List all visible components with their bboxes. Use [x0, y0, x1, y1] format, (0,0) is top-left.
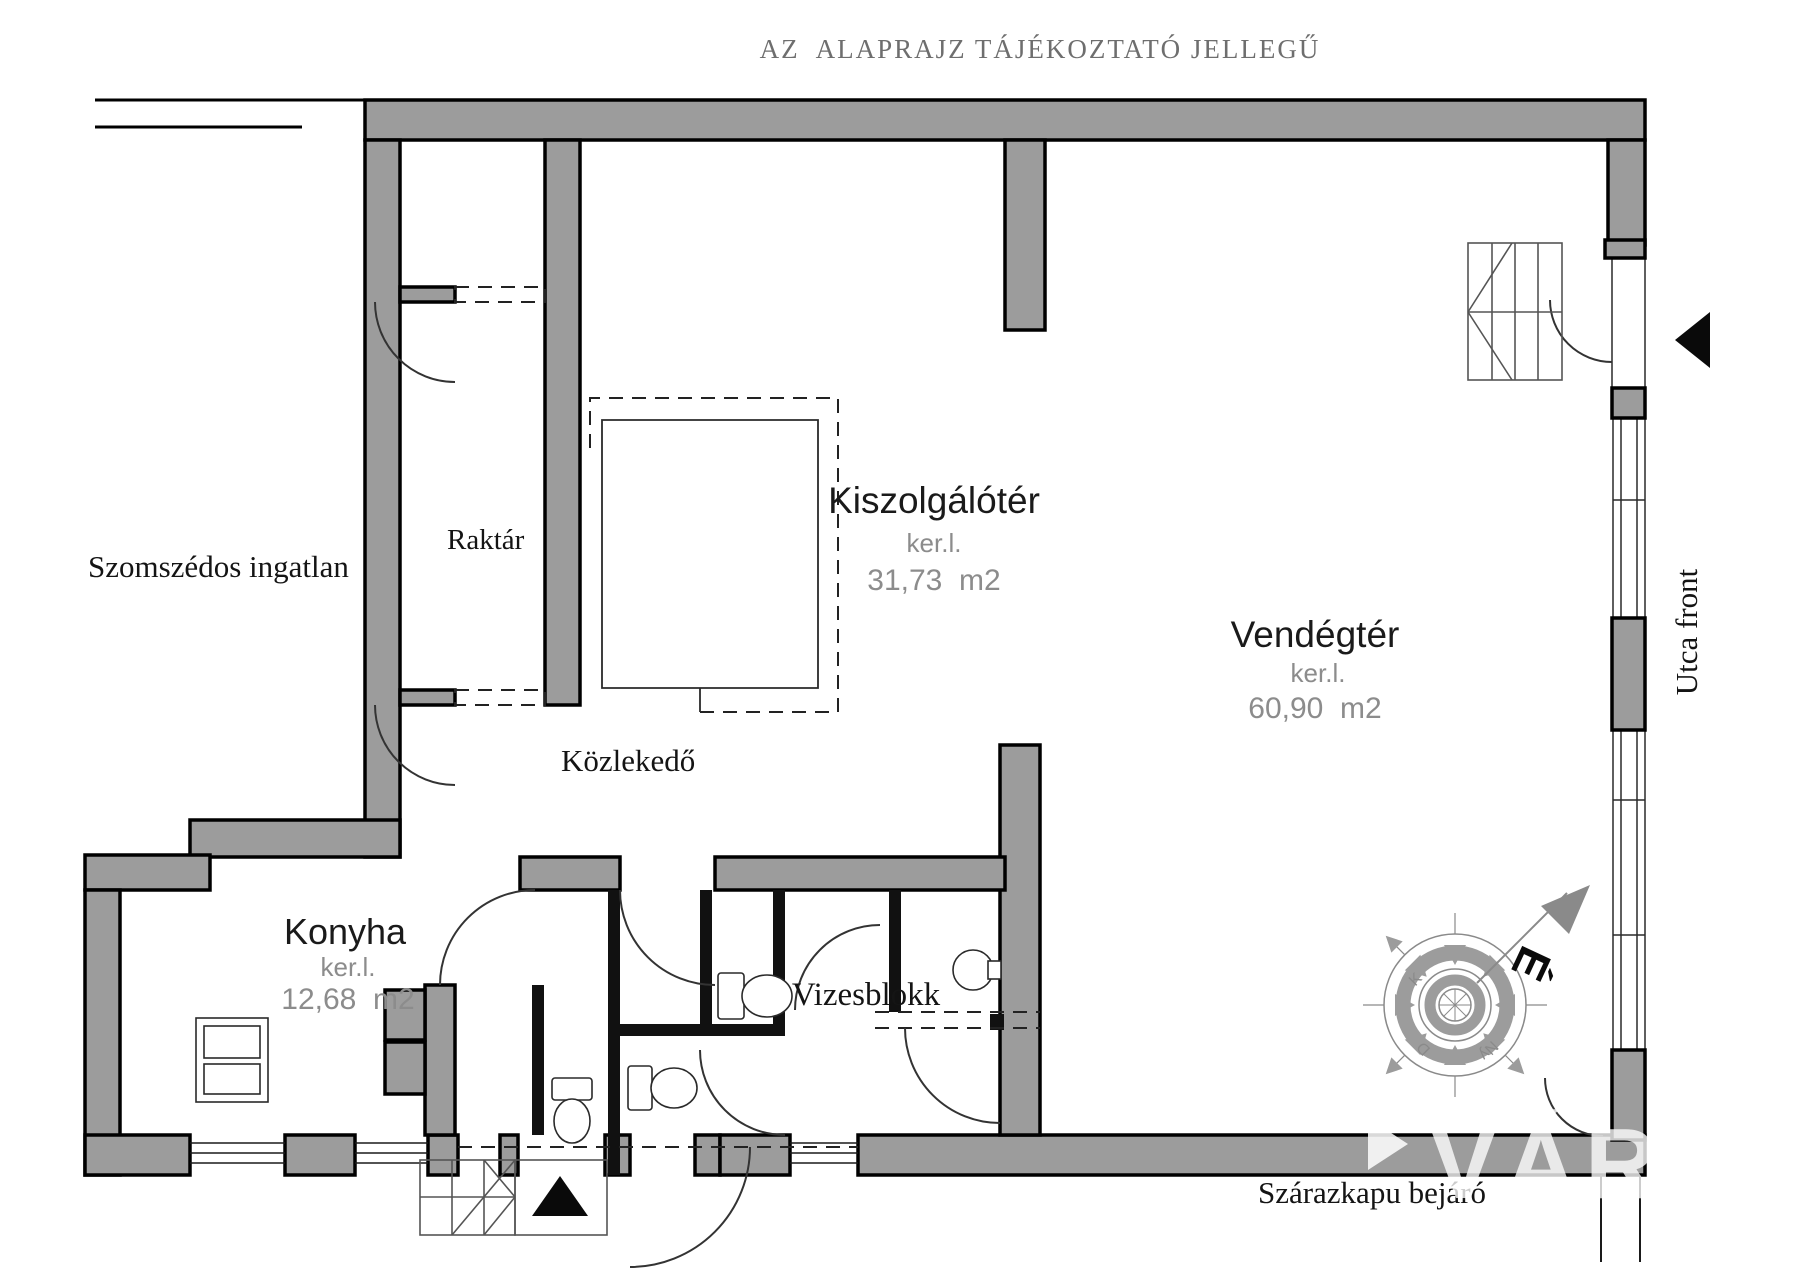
- wall-konyha-left: [85, 890, 120, 1175]
- watermark-text: VÁRO: [1430, 1108, 1751, 1220]
- wall-raktar-right: [545, 140, 580, 705]
- konyha-area: 12,68 m2: [281, 983, 414, 1016]
- wall-left: [365, 140, 400, 857]
- wall-right-pier-b: [1612, 618, 1645, 730]
- wall-bottom-a: [85, 1135, 190, 1175]
- room-label-vendegter: Vendégtér: [1231, 614, 1400, 655]
- wall-right-lintel: [1605, 240, 1645, 258]
- staircase-top-right: [1468, 243, 1562, 380]
- wall-sanitary-top-b: [715, 857, 1005, 890]
- washbasin: [953, 950, 1001, 990]
- entry-arrow-right: [1675, 312, 1710, 368]
- floor-plan-page: K D Ny É AZ ALAPRAJZ TÁJÉKOZTATÓ JELLEGŰ…: [0, 0, 1812, 1280]
- compass-rose: K D Ny É: [1363, 885, 1590, 1097]
- floor-plan-canvas: K D Ny É AZ ALAPRAJZ TÁJÉKOZTATÓ JELLEGŰ…: [0, 0, 1812, 1280]
- room-label-vizesblokk: Vizesblokk: [792, 977, 941, 1013]
- street-front-label: Utca front: [1669, 568, 1704, 695]
- wall-right-pier-a: [1612, 388, 1645, 418]
- wall-bottom-pier1: [428, 1135, 458, 1175]
- vendegter-unit: ker.l.: [1291, 658, 1346, 688]
- north-arrow-head: [1541, 885, 1590, 934]
- kiszolgaloter-unit: ker.l.: [907, 528, 962, 558]
- partition-walls: [532, 890, 1004, 1175]
- room-label-konyha: Konyha: [284, 911, 407, 952]
- wall-bottom-c: [720, 1135, 790, 1175]
- wall-vizes-divider: [1000, 745, 1040, 1135]
- wall-top: [365, 100, 1645, 140]
- room-label-raktar: Raktár: [447, 524, 525, 556]
- service-counter: [602, 420, 818, 712]
- service-counter-dashed: [590, 398, 838, 712]
- neighbor-label: Szomszédos ingatlan: [88, 549, 349, 584]
- wall-vestibule-left: [425, 985, 455, 1135]
- kiszolgaloter-area: 31,73 m2: [867, 564, 1000, 597]
- wall-konyha-top: [190, 820, 400, 857]
- wall-left-step: [85, 855, 210, 890]
- vendegter-area: 60,90 m2: [1248, 692, 1381, 725]
- raktar-door-jamb-bottom: [400, 690, 455, 705]
- kitchen-sink-unit: [196, 1018, 268, 1102]
- konyha-appliance-b: [385, 1042, 425, 1094]
- wall-divider-top: [1005, 140, 1045, 330]
- toilet-2: [628, 1066, 697, 1110]
- toilet-3: [552, 1078, 592, 1143]
- disclaimer-title: AZ ALAPRAJZ TÁJÉKOZTATÓ JELLEGŰ: [760, 34, 1321, 64]
- entry-arrow-bottom: [532, 1176, 588, 1216]
- wall-sanitary-top-a: [520, 857, 620, 890]
- toilet-1: [718, 973, 792, 1019]
- wall-bottom-pier4: [695, 1135, 720, 1175]
- wall-right-top: [1608, 140, 1645, 245]
- konyha-unit: ker.l.: [321, 952, 376, 982]
- room-label-kiszolgaloter: Kiszolgálótér: [828, 480, 1040, 521]
- site-boundary-lines: [95, 100, 365, 127]
- room-label-kozlekedo: Közlekedő: [561, 743, 695, 778]
- wall-bottom-b: [285, 1135, 355, 1175]
- raktar-door-jamb-top: [400, 287, 455, 302]
